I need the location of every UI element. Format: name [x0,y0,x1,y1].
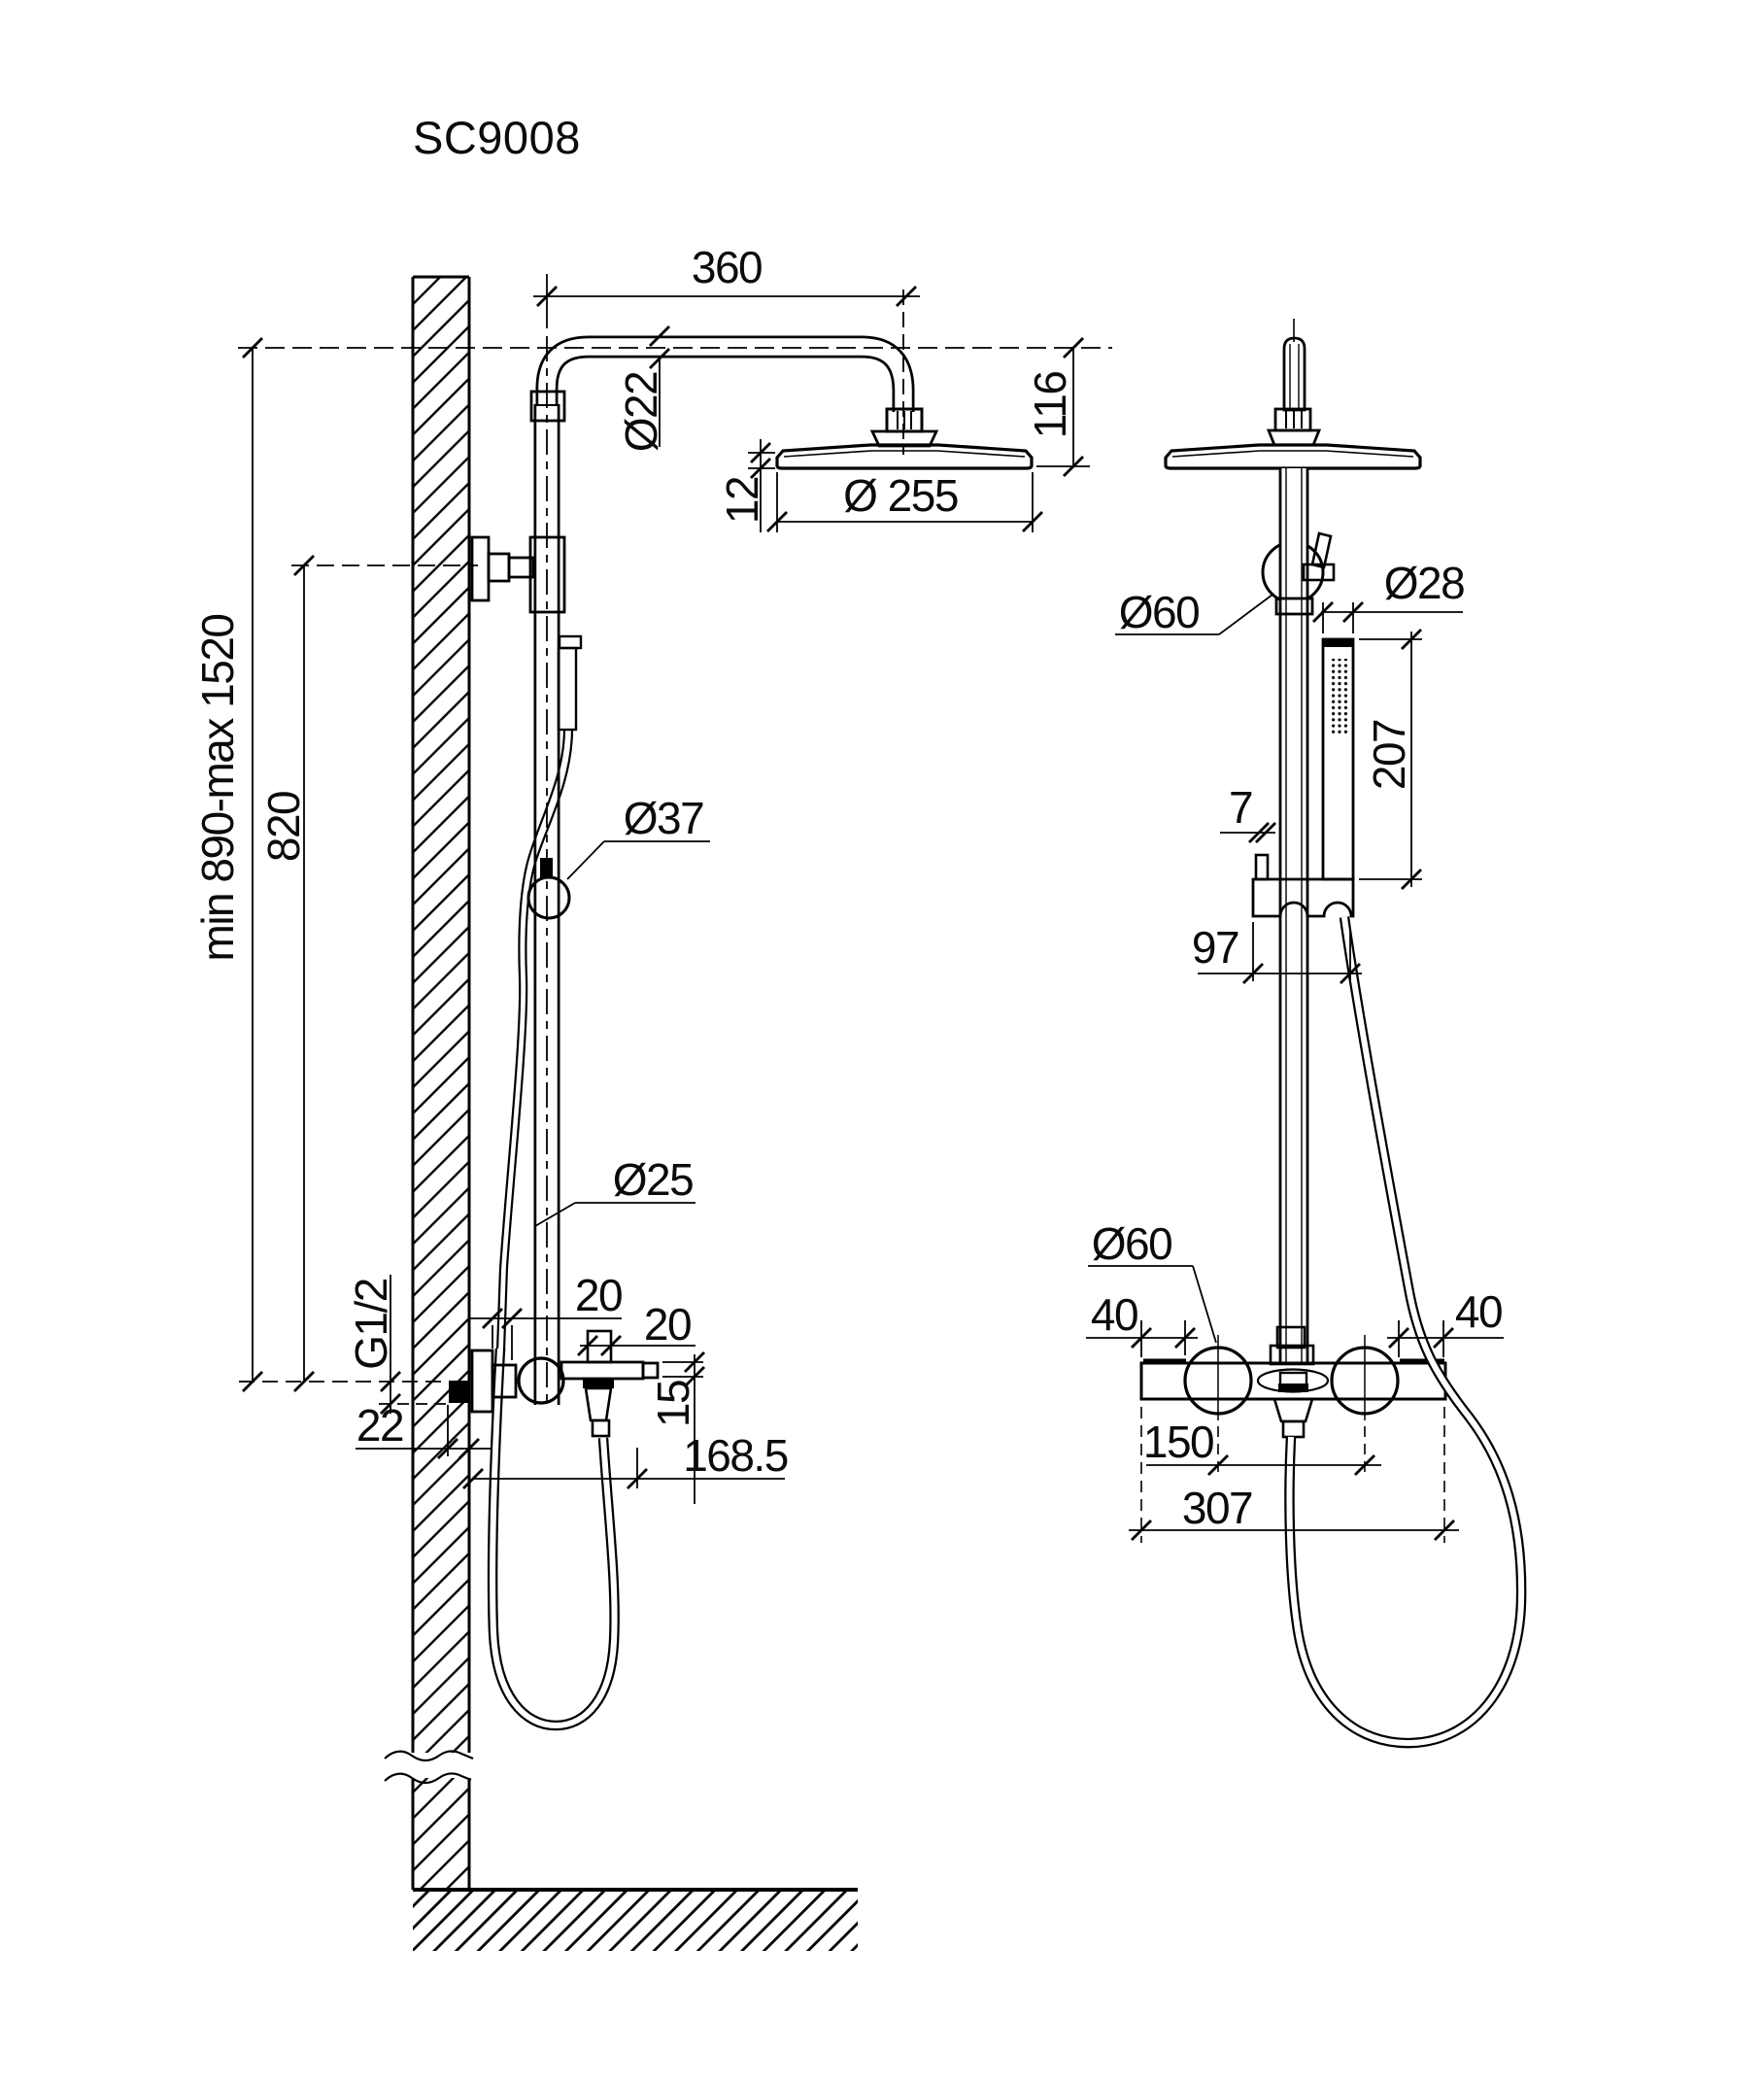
dim-holder-gap: 7 [1229,782,1252,833]
dim-knob-spacing: 150 [1143,1417,1213,1467]
floor-section [413,1890,858,1951]
riser-top [1284,338,1305,410]
dim-escutcheon-offset: 20 [575,1270,622,1320]
hose-loop-side [492,1349,615,1725]
dim-height-range: min 890-max 1520 [192,615,243,962]
overhead-shower-front [1166,445,1420,468]
dim-head-dia: Ø 255 [843,470,958,521]
left-view [449,347,1032,1725]
shower-system-drawing: SC9008 360 Ø22 12 Ø 255 116 min 890-max … [0,0,1764,2084]
dim-bracket-height: 820 [258,792,309,862]
escutcheon [472,1350,492,1412]
diverter-knob [588,1331,611,1362]
dim-outlet-reach: 168.5 [683,1430,788,1481]
dim-swivel-dia: Ø60 [1119,587,1199,637]
dim-wand-dia: Ø28 [1384,558,1464,608]
dim-spout-height: 15 [648,1381,698,1427]
dim-body-width: 307 [1182,1483,1252,1533]
dim-knob-dia: Ø60 [1092,1218,1171,1269]
dim-head-thickness: 12 [717,477,767,524]
technical-drawing-page: SC9008 360 Ø22 12 Ø 255 116 min 890-max … [0,0,1764,2084]
overhead-shower [777,409,1032,468]
dim-diverter-width: 20 [644,1299,691,1349]
spray-face [1329,659,1348,734]
dim-wand-length: 207 [1364,720,1414,790]
dim-supply-thread: G1/2 [346,1279,396,1370]
wall-section [385,277,480,1890]
handshower-side [559,636,581,730]
dim-arm-dia: Ø22 [616,372,666,452]
dim-margin-left: 40 [1091,1289,1137,1340]
hose-outlet [593,1420,609,1436]
supply-fitting [449,1381,469,1403]
spout-bar [561,1362,643,1379]
dim-supply-depth: 22 [356,1400,403,1451]
dim-column-dia: Ø25 [613,1154,693,1205]
shower-arm [547,347,903,422]
drawing-code: SC9008 [413,112,581,163]
dim-arm-length: 360 [692,242,762,292]
handshower-hook [560,636,581,648]
dim-head-drop: 116 [1025,372,1075,439]
dim-holder-reach: 97 [1192,922,1238,973]
handshower-front [1323,639,1353,879]
riser-front [1279,468,1308,1363]
dim-margin-right: 40 [1455,1286,1502,1337]
dim-slider-dia: Ø37 [624,793,703,843]
